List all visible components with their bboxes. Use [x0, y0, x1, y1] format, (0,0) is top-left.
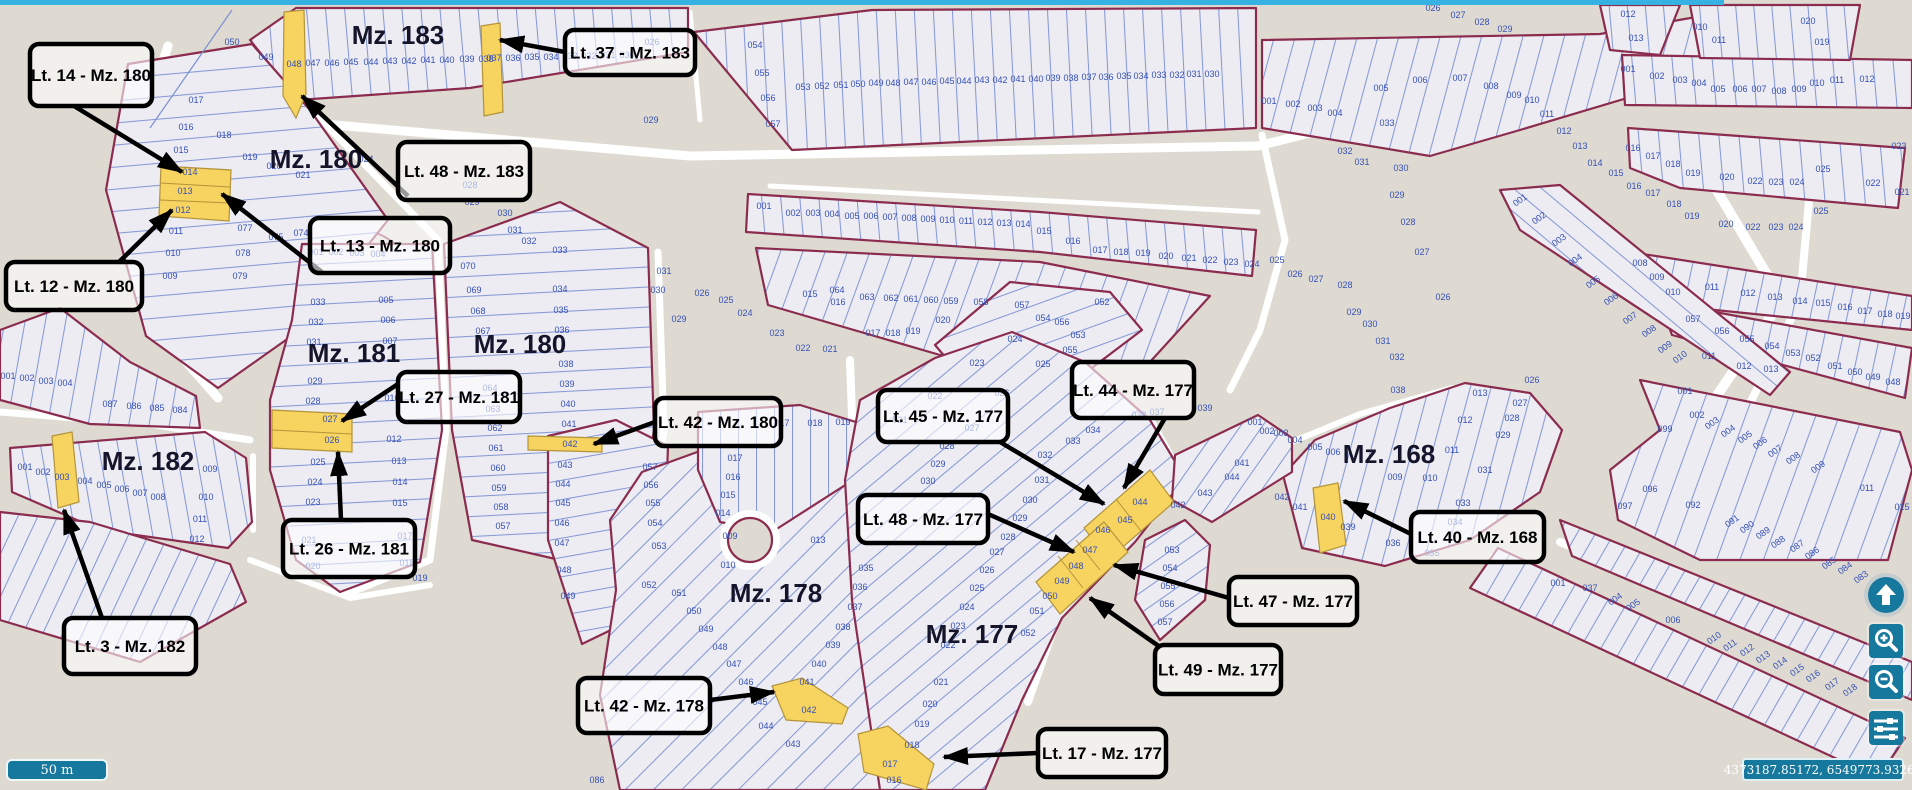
lot-number: 040	[439, 55, 454, 65]
lot-number: 023	[1768, 177, 1783, 187]
lot-number: 019	[1684, 211, 1699, 221]
lot-number: 057	[1014, 300, 1029, 310]
lot-number: 019	[1135, 248, 1150, 258]
lot-number: 019	[242, 152, 257, 162]
lot-number: 032	[1169, 70, 1184, 80]
lot-number: 012	[1740, 288, 1755, 298]
lot-number: 028	[1337, 280, 1352, 290]
lot-number: 017	[1092, 245, 1107, 255]
map-canvas[interactable]: 0500490480470460450440430420410400390380…	[0, 0, 1912, 790]
lot-number: 025	[1269, 255, 1284, 265]
lot-number: 052	[1805, 353, 1820, 363]
lot-number: 060	[490, 463, 505, 473]
lot-number: 016	[1837, 302, 1852, 312]
lot-number: 060	[923, 295, 938, 305]
lot-number: 047	[1082, 545, 1097, 555]
callout-label: Lt. 40 - Mz. 168	[1418, 528, 1538, 547]
lot-number: 014	[1015, 219, 1030, 229]
lot-number: 023	[769, 328, 784, 338]
lot-number: 006	[1732, 84, 1747, 94]
lot-number: 056	[760, 93, 775, 103]
lot-number: 011	[1860, 483, 1874, 493]
lot-number: 024	[737, 308, 752, 318]
lot-number: 012	[1859, 74, 1874, 84]
lot-number: 029	[1346, 307, 1361, 317]
lot-number: 023	[1891, 141, 1906, 151]
lot-number: 015	[392, 498, 407, 508]
lot-number: 022	[795, 343, 810, 353]
scale-bar: 50 m	[6, 759, 108, 781]
lot-number: 042	[1170, 500, 1185, 510]
lot-number: 018	[1666, 199, 1681, 209]
lot-number: 010	[939, 215, 954, 225]
lot-number: 026	[694, 288, 709, 298]
lot-number: 006	[114, 484, 129, 494]
lot-number: 002	[785, 208, 800, 218]
lot-number: 096	[1642, 484, 1657, 494]
lot-number: 010	[1809, 78, 1824, 88]
lot-number: 006	[1325, 447, 1340, 457]
lot-number: 056	[1054, 317, 1069, 327]
block-label: Mz. 180	[270, 144, 363, 174]
lot-number: 021	[822, 344, 837, 354]
lot-number: 046	[324, 58, 339, 68]
lot-number: 058	[973, 297, 988, 307]
lot-number: 013	[1767, 292, 1782, 302]
lot-number: 003	[38, 376, 53, 386]
lot-number: 036	[1098, 72, 1113, 82]
lot-number: 010	[1665, 287, 1680, 297]
lot-number: 009	[1649, 272, 1664, 282]
lot-number: 041	[561, 419, 576, 429]
lot-number: 037	[486, 53, 501, 63]
block-label: Mz. 183	[352, 20, 445, 50]
lot-number: 032	[1337, 146, 1352, 156]
lot-number: 011	[959, 216, 973, 226]
lot-number: 055	[645, 498, 660, 508]
lot-number: 011	[1540, 109, 1554, 119]
lot-number: 049	[698, 624, 713, 634]
lot-number: 002	[1689, 410, 1704, 420]
lot-number: 029	[930, 459, 945, 469]
lot-number: 051	[1827, 361, 1842, 371]
lot-number: 047	[554, 538, 569, 548]
lot-number: 005	[96, 480, 111, 490]
lot-number: 044	[1132, 497, 1147, 507]
lot-number: 012	[1736, 361, 1751, 371]
lot-number: 020	[1718, 219, 1733, 229]
lot-number: 008	[1483, 81, 1498, 91]
lot-number: 039	[1045, 73, 1060, 83]
lot-number: 034	[552, 284, 567, 294]
lot-number: 019	[835, 417, 850, 427]
lot-number: 006	[380, 315, 395, 325]
lot-number: 045	[343, 57, 358, 67]
lot-number: 033	[552, 245, 567, 255]
lot-number: 016	[725, 472, 740, 482]
lot-number: 053	[651, 541, 666, 551]
lot-number: 001	[1261, 96, 1276, 106]
lot-number: 016	[1625, 143, 1640, 153]
lot-number: 043	[974, 75, 989, 85]
lot-number: 018	[1877, 309, 1892, 319]
block-label: Mz. 181	[308, 338, 401, 368]
lot-number: 031	[1186, 69, 1201, 79]
lot-number: 043	[557, 460, 572, 470]
callout-label: Lt. 12 - Mz. 180	[14, 277, 134, 296]
lot-number: 045	[752, 697, 767, 707]
lot-number: 036	[852, 582, 867, 592]
lot-number: 001	[0, 371, 15, 381]
zoom-out-button[interactable]	[1869, 665, 1903, 699]
lot-number: 027	[1512, 398, 1527, 408]
lot-number: 020	[1158, 251, 1173, 261]
lot-number: 013	[391, 456, 406, 466]
lot-number: 029	[1495, 430, 1510, 440]
lot-number: 039	[1340, 522, 1355, 532]
lot-number: 012	[175, 205, 190, 215]
lot-number: 026	[979, 565, 994, 575]
lot-number: 030	[497, 208, 512, 218]
lot-number: 049	[1865, 372, 1880, 382]
lot-number: 013	[810, 535, 825, 545]
lot-number: 051	[1029, 606, 1044, 616]
lot-number: 011	[1705, 282, 1719, 292]
lot-number: 011	[1445, 445, 1459, 455]
lot-number: 086	[126, 401, 141, 411]
lot-number: 054	[647, 518, 662, 528]
lot-number: 002	[19, 373, 34, 383]
block-label: Mz. 180	[474, 329, 567, 359]
lot-number: 023	[1768, 222, 1783, 232]
lot-number: 030	[1204, 69, 1219, 79]
lot-number: 025	[310, 457, 325, 467]
lot-number: 033	[1455, 498, 1470, 508]
lot-number: 010	[1422, 473, 1437, 483]
lot-number: 048	[286, 59, 301, 69]
lot-number: 031	[656, 266, 671, 276]
lot-number: 038	[1390, 385, 1405, 395]
layer-settings-icon	[1869, 711, 1903, 745]
lot-number: 029	[1389, 190, 1404, 200]
lot-number: 014	[1587, 158, 1602, 168]
lot-number: 056	[1714, 326, 1729, 336]
lot-number: 033	[310, 297, 325, 307]
callout-label: Lt. 47 - Mz. 177	[1233, 592, 1353, 611]
lot-number: 034	[1133, 71, 1148, 81]
lot-number: 018	[807, 418, 822, 428]
lot-number: 015	[173, 145, 188, 155]
lot-number: 015	[1608, 168, 1623, 178]
lot-number: 052	[1094, 297, 1109, 307]
lot-number: 051	[671, 588, 686, 598]
callout-label: Lt. 48 - Mz. 183	[404, 162, 524, 181]
lot-number: 059	[943, 296, 958, 306]
lot-number: 047	[903, 77, 918, 87]
lot-number: 035	[553, 305, 568, 315]
lot-number: 008	[150, 492, 165, 502]
lot-number: 063	[859, 292, 874, 302]
lot-number: 017	[1645, 188, 1660, 198]
lot-number: 037	[1081, 72, 1096, 82]
lot-number: 042	[1274, 492, 1289, 502]
lot-number: 006	[1412, 75, 1427, 85]
lot-number: 014	[1792, 296, 1807, 306]
lot-number: 039	[459, 54, 474, 64]
lot-number: 005	[1710, 84, 1725, 94]
lot-number: 008	[1632, 258, 1647, 268]
callout-label: Lt. 44 - Mz. 177	[1073, 381, 1193, 400]
lot-number: 006	[1665, 615, 1680, 625]
lot-number: 045	[939, 76, 954, 86]
callout-label: Lt. 48 - Mz. 177	[863, 510, 983, 529]
lot-number: 009	[1387, 472, 1402, 482]
lot-number: 050	[1847, 367, 1862, 377]
lot-number: 004	[57, 378, 72, 388]
lot-number: 039	[559, 379, 574, 389]
lot-number: 015	[802, 289, 817, 299]
lot-number: 032	[1037, 450, 1052, 460]
lot-number: 032	[308, 317, 323, 327]
lot-number: 012	[386, 434, 401, 444]
lot-number: 016	[886, 775, 901, 785]
lot-number: 036	[1385, 538, 1400, 548]
lot-number: 049	[258, 52, 273, 62]
lot-number: 087	[102, 399, 117, 409]
lot-number: 031	[1354, 157, 1369, 167]
lot-number: 009	[162, 271, 177, 281]
zoom-in-icon	[1869, 624, 1903, 658]
lot-number: 015	[1815, 298, 1830, 308]
lot-number: 039	[1197, 403, 1212, 413]
lot-number: 025	[1035, 359, 1050, 369]
lot-number: 004	[1287, 435, 1302, 445]
lot-number: 007	[882, 212, 897, 222]
lot-number: 040	[811, 659, 826, 669]
lot-number: 011	[169, 226, 183, 236]
lot-number: 059	[491, 483, 506, 493]
lot-number: 055	[754, 68, 769, 78]
lot-number: 009	[1791, 84, 1806, 94]
lot-number: 009	[202, 464, 217, 474]
lot-number: 010	[1524, 95, 1539, 105]
callout-label: Lt. 42 - Mz. 180	[658, 413, 778, 432]
lot-number: 042	[401, 56, 416, 66]
lot-number: 051	[833, 80, 848, 90]
lot-number: 084	[172, 405, 187, 415]
lot-number: 092	[1685, 500, 1700, 510]
lot-number: 057	[495, 521, 510, 531]
lot-number: 064	[829, 285, 844, 295]
lot-number: 004	[77, 476, 92, 486]
block-label: Mz. 182	[102, 446, 195, 476]
lot-number: 008	[1771, 86, 1786, 96]
lot-number: 017	[1857, 306, 1872, 316]
lot-number: 044	[1224, 472, 1239, 482]
callout-label: Lt. 42 - Mz. 178	[584, 697, 704, 716]
lot-number: 050	[1042, 591, 1057, 601]
lot-number: 013	[1472, 388, 1487, 398]
lot-number: 022	[1747, 176, 1762, 186]
pan-up-button[interactable]	[1868, 577, 1904, 613]
lot-number: 077	[237, 223, 252, 233]
lot-number: 013	[1763, 364, 1778, 374]
lot-number: 070	[460, 261, 475, 271]
lot-number: 057	[642, 462, 657, 472]
lot-number: 002	[1649, 71, 1664, 81]
callout-label: Lt. 45 - Mz. 177	[883, 407, 1003, 426]
lot-number: 043	[1197, 488, 1212, 498]
lot-number: 039	[825, 640, 840, 650]
lot-number: 029	[671, 314, 686, 324]
lot-number: 011	[1712, 35, 1726, 45]
zoom-out-icon	[1869, 665, 1903, 699]
lot-number: 005	[1307, 442, 1322, 452]
lot-number: 010	[720, 560, 735, 570]
lot-number: 016	[1626, 181, 1641, 191]
layer-settings-button[interactable]	[1869, 711, 1903, 745]
lot-number: 024	[1007, 334, 1022, 344]
lot-number: 056	[643, 480, 658, 490]
lot-number: 068	[470, 306, 485, 316]
lot-number: 024	[307, 477, 322, 487]
lot-number: 024	[1788, 222, 1803, 232]
lot-number: 050	[850, 79, 865, 89]
lot-number: 007	[132, 488, 147, 498]
lot-number: 035	[858, 563, 873, 573]
lot-number: 053	[1785, 348, 1800, 358]
lot-number: 038	[835, 622, 850, 632]
lot-number: 025	[1813, 206, 1828, 216]
lot-number: 085	[149, 403, 164, 413]
lot-number: 003	[805, 208, 820, 218]
lot-number: 017	[865, 328, 880, 338]
lot-number: 021	[1181, 253, 1196, 263]
lot-number: 009	[722, 531, 737, 541]
lot-number: 040	[560, 399, 575, 409]
lot-number: 011	[1830, 75, 1844, 85]
lot-number: 055	[1062, 345, 1077, 355]
lot-number: 017	[727, 453, 742, 463]
lot-number: 007	[1452, 73, 1467, 83]
lot-number: 002	[35, 467, 50, 477]
lot-number: 025	[969, 583, 984, 593]
lot-number: 035	[1116, 71, 1131, 81]
scale-bar-label: 50 m	[40, 763, 73, 778]
lot-number: 044	[758, 721, 773, 731]
lot-number: 061	[488, 443, 503, 453]
callout-label: Lt. 14 - Mz. 180	[31, 66, 151, 85]
lot-number: 017	[188, 95, 203, 105]
lot-number: 028	[1474, 17, 1489, 27]
lot-number: 024	[959, 602, 974, 612]
coordinate-readout: 4373187.85172, 6549773.93264	[1742, 758, 1904, 781]
lot-number: 023	[969, 358, 984, 368]
lot-number: 020	[1719, 172, 1734, 182]
lot-number: 010	[198, 492, 213, 502]
callout-label: Lt. 13 - Mz. 180	[320, 237, 440, 256]
lot-number: 003	[54, 472, 69, 482]
lot-number: 043	[382, 56, 397, 66]
lot-number: 053	[795, 82, 810, 92]
lot-number: 026	[1524, 375, 1539, 385]
lot-number: 004	[1691, 78, 1706, 88]
lot-number: 017	[882, 759, 897, 769]
lot-number: 002	[1259, 426, 1274, 436]
lot-number: 027	[322, 414, 337, 424]
lot-number: 028	[1400, 217, 1415, 227]
map-top-border	[0, 0, 1724, 5]
lot-number: 054	[1035, 313, 1050, 323]
lot-number: 041	[799, 677, 814, 687]
lot-number: 029	[1012, 513, 1027, 523]
zoom-in-button[interactable]	[1869, 624, 1903, 658]
lot-number: 025	[1815, 164, 1830, 174]
lot-number: 046	[921, 77, 936, 87]
lot-number: 050	[224, 37, 239, 47]
lot-number: 044	[956, 76, 971, 86]
lot-number: 012	[1620, 9, 1635, 19]
lot-number: 042	[992, 75, 1007, 85]
lot-number: 047	[726, 659, 741, 669]
coordinate-value: 4373187.85172, 6549773.93264	[1724, 763, 1912, 777]
lot-number: 099	[1657, 424, 1672, 434]
lot-number: 034	[543, 52, 558, 62]
lot-number: 030	[1393, 163, 1408, 173]
lot-number: 079	[232, 271, 247, 281]
lot-number: 022	[1202, 255, 1217, 265]
lot-number: 011	[193, 514, 207, 524]
lot-number: 007	[1751, 84, 1766, 94]
lot-number: 044	[363, 57, 378, 67]
lot-number: 018	[216, 130, 231, 140]
lot-number: 046	[1095, 525, 1110, 535]
lot-number: 018	[904, 740, 919, 750]
highlighted-lot[interactable]	[481, 23, 503, 116]
lot-number: 045	[1117, 515, 1132, 525]
lot-number: 030	[1362, 319, 1377, 329]
lot-number: 016	[1065, 236, 1080, 246]
lot-number: 003	[1273, 428, 1288, 438]
lot-number: 004	[1327, 108, 1342, 118]
lot-number: 052	[1020, 628, 1035, 638]
lot-number: 005	[844, 211, 859, 221]
lot-number: 005	[1373, 83, 1388, 93]
lot-number: 046	[738, 677, 753, 687]
lot-number: 023	[1223, 257, 1238, 267]
lot-number: 018	[1665, 159, 1680, 169]
lot-number: 026	[1435, 292, 1450, 302]
lot-number: 003	[1672, 75, 1687, 85]
lot-number: 002	[1285, 99, 1300, 109]
lot-number: 027	[1450, 10, 1465, 20]
callout-arrow	[338, 452, 341, 520]
lot-number: 030	[1022, 495, 1037, 505]
lot-number: 049	[1054, 576, 1069, 586]
lot-number: 022	[1865, 178, 1880, 188]
lot-number: 011	[1702, 351, 1716, 361]
lot-number: 061	[903, 294, 918, 304]
lot-number: 045	[555, 498, 570, 508]
lot-number: 014	[182, 167, 197, 177]
map-viewport: 0500490480470460450440430420410400390380…	[0, 0, 1912, 790]
lot-number: 020	[935, 315, 950, 325]
lot-number: 037	[1582, 583, 1597, 593]
lot-number: 052	[814, 81, 829, 91]
lot-number: 069	[466, 285, 481, 295]
lot-number: 012	[1457, 415, 1472, 425]
lot-number: 033	[1379, 118, 1394, 128]
